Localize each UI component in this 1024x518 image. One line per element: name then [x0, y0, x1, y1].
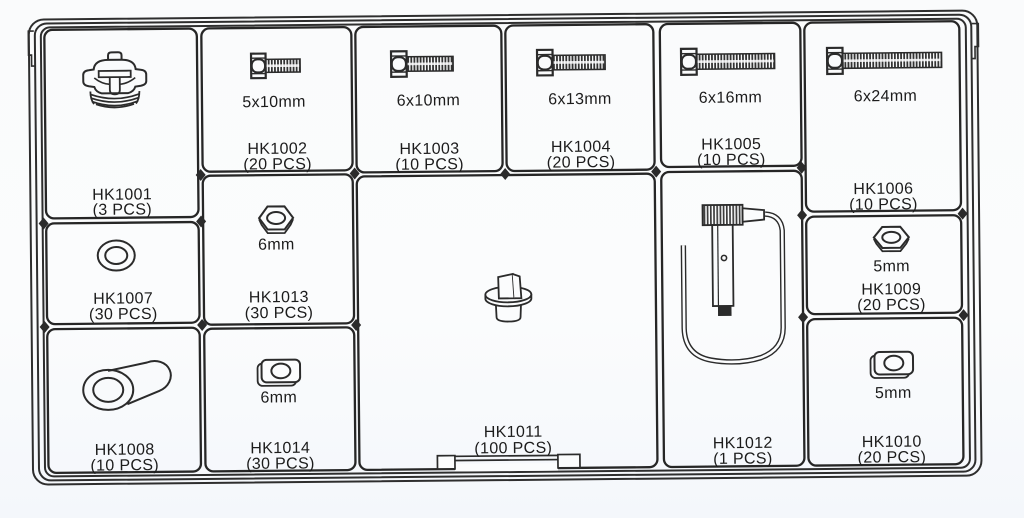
svg-text:(10 PCS): (10 PCS): [697, 151, 766, 169]
svg-text:(3 PCS): (3 PCS): [93, 201, 153, 219]
svg-text:6mm: 6mm: [260, 389, 297, 406]
svg-text:6x24mm: 6x24mm: [854, 88, 918, 106]
svg-text:(30 PCS): (30 PCS): [246, 455, 315, 473]
svg-text:(10 PCS): (10 PCS): [849, 196, 918, 214]
svg-text:HK1011: HK1011: [484, 424, 543, 442]
svg-text:6x16mm: 6x16mm: [699, 89, 763, 107]
svg-text:(1 PCS): (1 PCS): [713, 450, 773, 468]
svg-text:5mm: 5mm: [875, 385, 912, 402]
svg-text:(20 PCS): (20 PCS): [243, 156, 312, 174]
svg-text:(20 PCS): (20 PCS): [858, 449, 927, 467]
svg-text:(10 PCS): (10 PCS): [395, 156, 464, 174]
svg-text:6mm: 6mm: [258, 236, 295, 253]
svg-text:5mm: 5mm: [873, 258, 910, 275]
svg-text:(10 PCS): (10 PCS): [90, 457, 159, 475]
svg-text:(100 PCS): (100 PCS): [474, 440, 552, 458]
svg-text:6x13mm: 6x13mm: [548, 91, 612, 109]
svg-text:(20 PCS): (20 PCS): [857, 297, 926, 315]
svg-text:6x10mm: 6x10mm: [397, 92, 461, 110]
svg-text:(30 PCS): (30 PCS): [89, 306, 158, 324]
svg-text:(30 PCS): (30 PCS): [245, 305, 314, 323]
svg-text:(20 PCS): (20 PCS): [547, 154, 616, 172]
svg-text:5x10mm: 5x10mm: [242, 94, 306, 112]
